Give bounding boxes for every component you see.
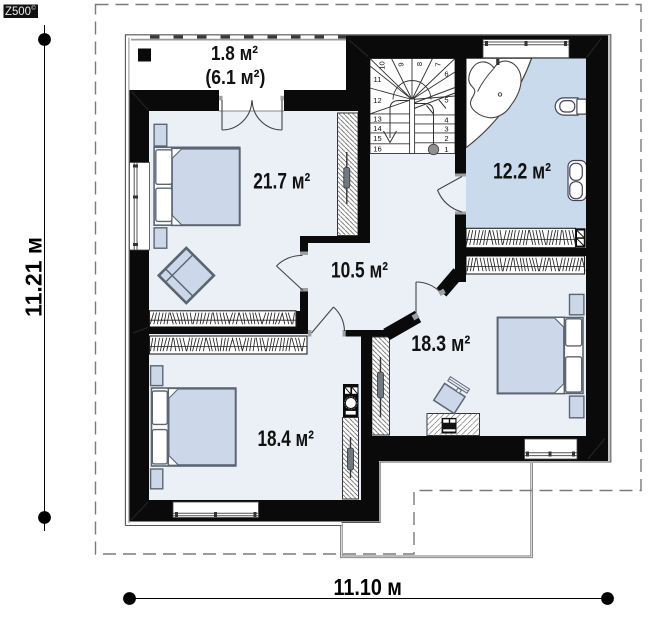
svg-text:11: 11 (374, 75, 382, 84)
svg-text:4: 4 (444, 116, 448, 125)
svg-text:15: 15 (373, 134, 381, 143)
svg-text:10.5 м²: 10.5 м² (331, 258, 388, 283)
svg-text:21.7 м²: 21.7 м² (253, 169, 310, 194)
svg-text:1.8 м²: 1.8 м² (211, 42, 258, 65)
svg-text:16: 16 (373, 145, 381, 154)
svg-text:13: 13 (373, 115, 381, 124)
svg-text:10: 10 (378, 61, 387, 69)
svg-text:18.4 м²: 18.4 м² (257, 426, 314, 451)
svg-text:11.21 м: 11.21 м (21, 237, 47, 317)
svg-text:6: 6 (444, 70, 448, 79)
svg-text:5: 5 (444, 96, 448, 105)
svg-text:9: 9 (397, 62, 406, 66)
svg-text:14: 14 (373, 124, 381, 133)
svg-text:12: 12 (373, 96, 381, 105)
svg-text:2: 2 (444, 134, 448, 143)
svg-text:1: 1 (444, 145, 448, 154)
svg-text:©: © (31, 5, 36, 12)
svg-text:11.10 м: 11.10 м (333, 574, 402, 600)
svg-text:12.2 м²: 12.2 м² (493, 159, 551, 184)
svg-text:18.3 м²: 18.3 м² (411, 331, 470, 356)
svg-text:Z500: Z500 (5, 4, 31, 18)
svg-text:(6.1 м²): (6.1 м²) (205, 66, 265, 89)
svg-text:3: 3 (444, 125, 448, 134)
svg-text:8: 8 (415, 62, 424, 66)
svg-text:7: 7 (434, 62, 443, 66)
